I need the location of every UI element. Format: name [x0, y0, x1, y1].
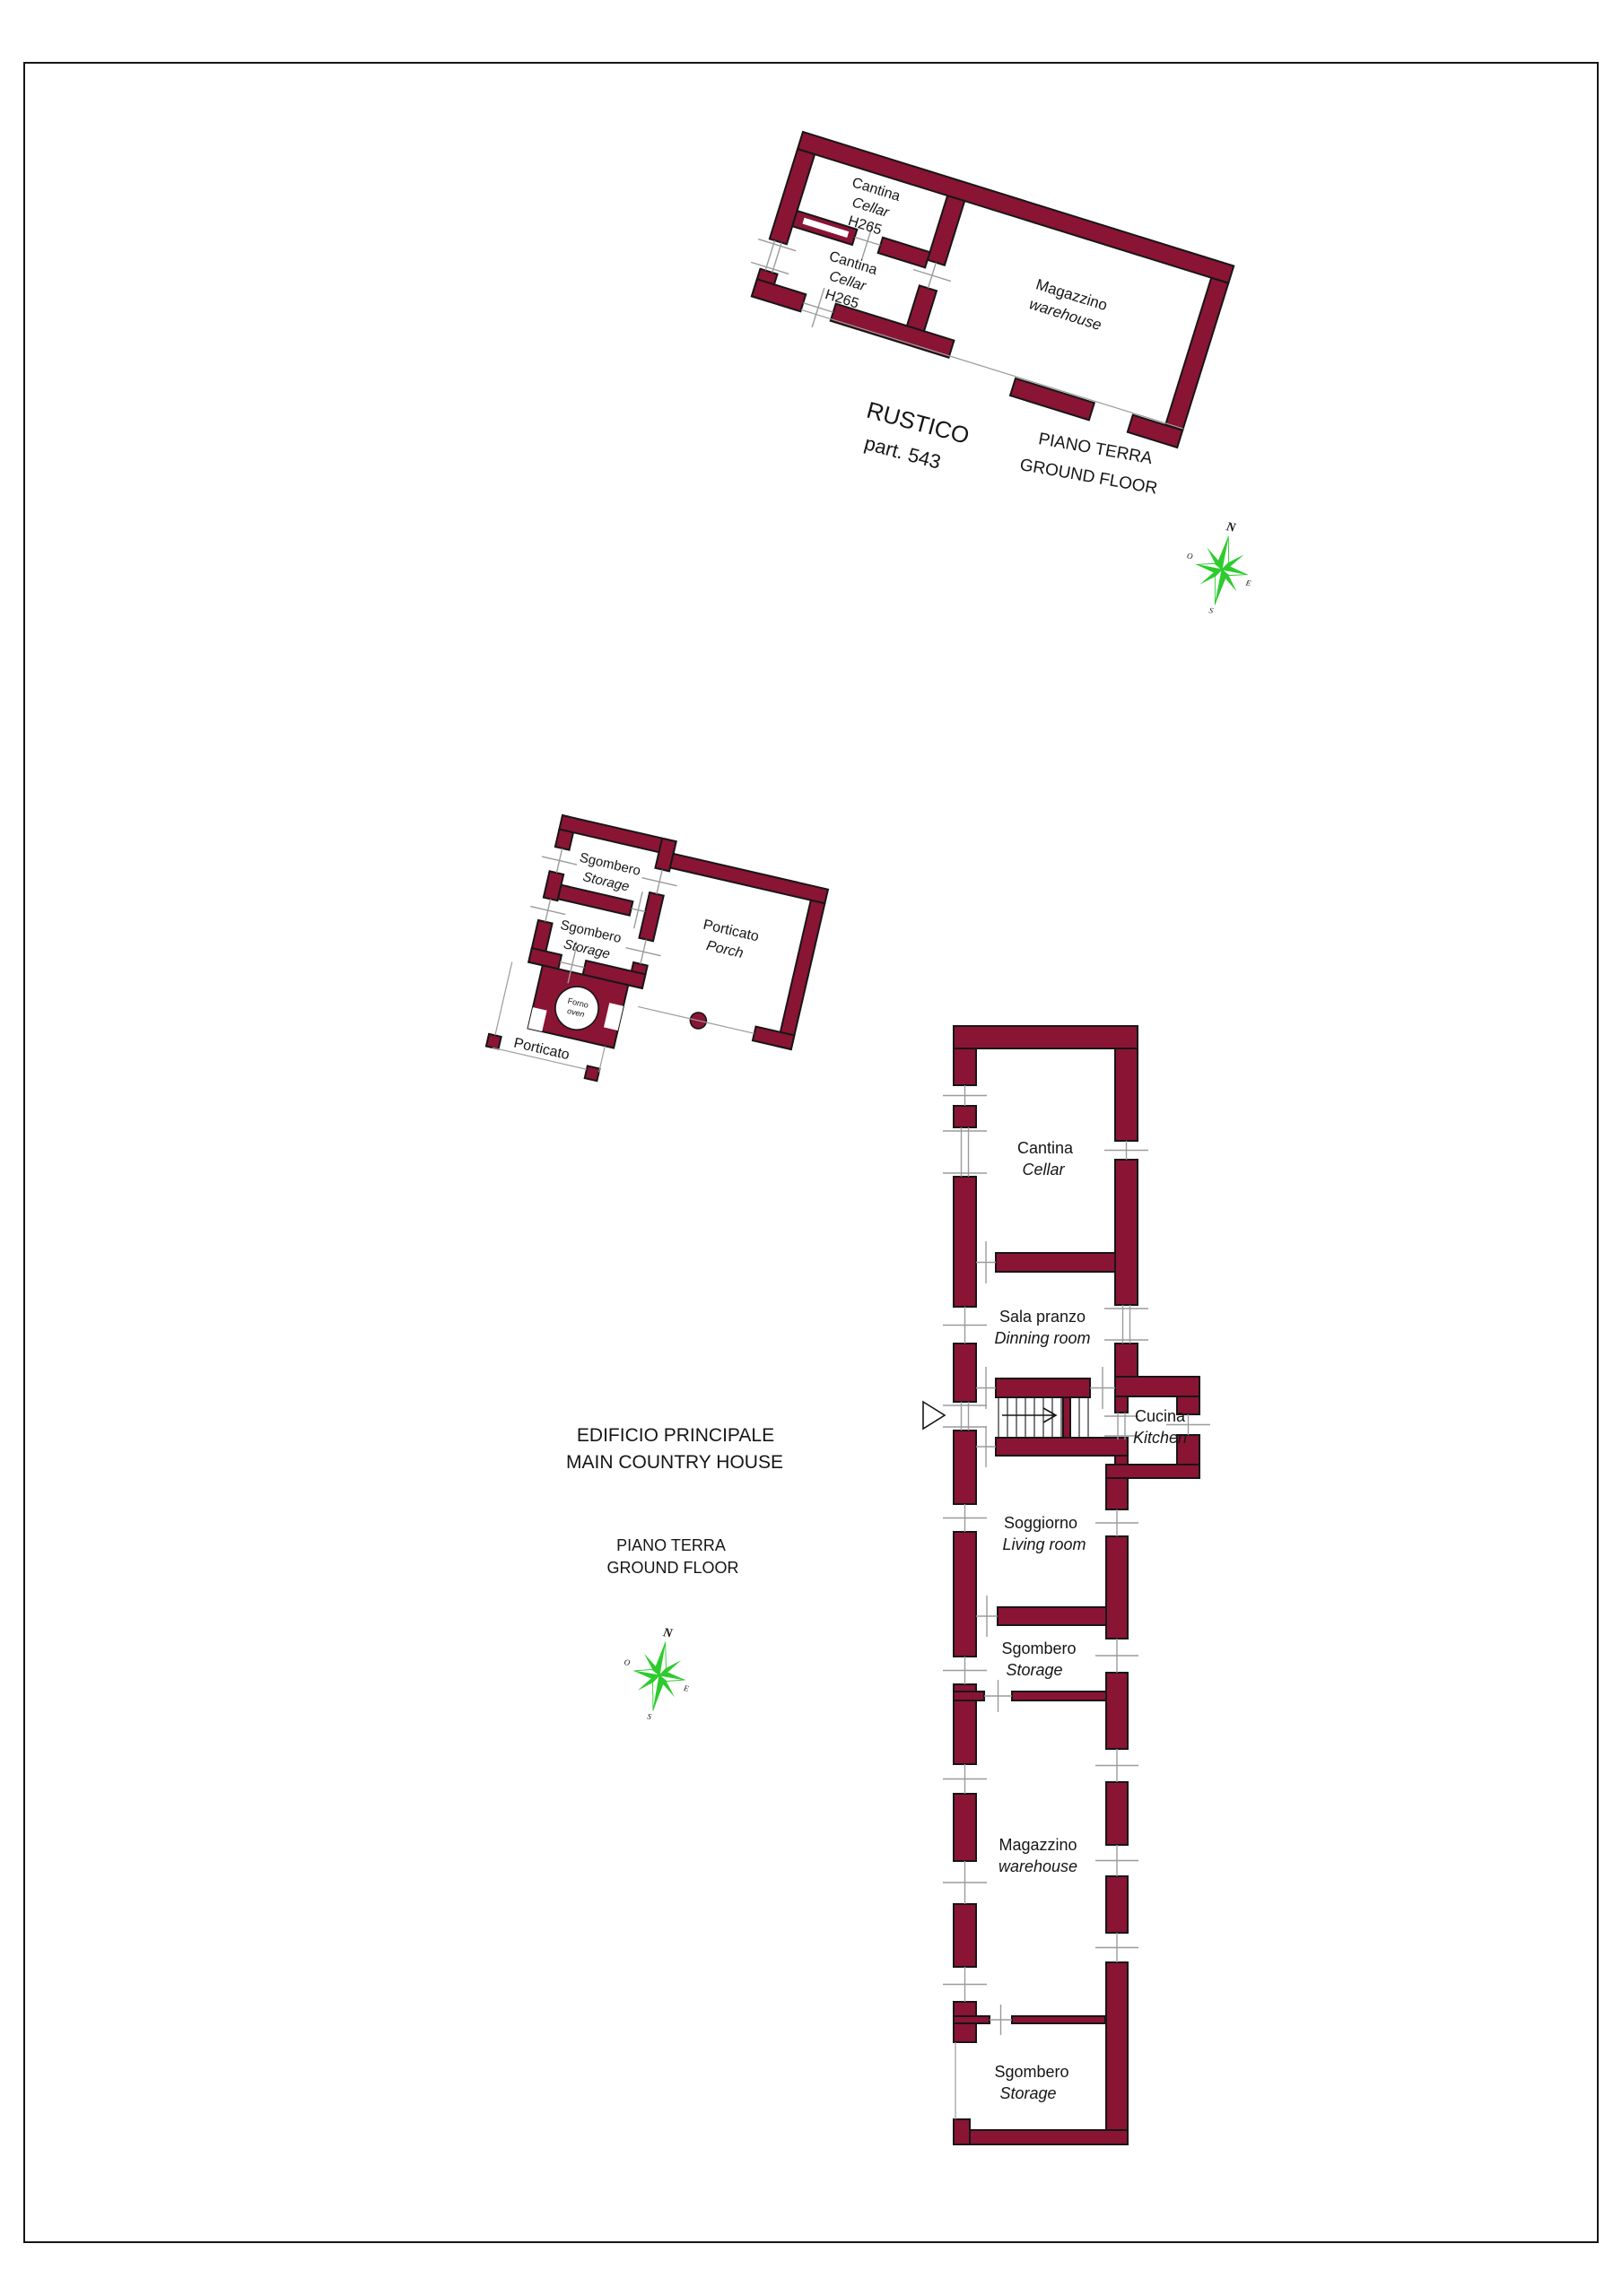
wall-segment	[954, 1692, 984, 1700]
rustico-caption: RUSTICO part. 543	[856, 396, 972, 479]
compass-north-upper	[1177, 514, 1263, 622]
wall-segment	[1115, 1160, 1138, 1305]
wall-segment	[1106, 1465, 1199, 1478]
wall-segment	[998, 1607, 1106, 1625]
wall-segment	[996, 1378, 1090, 1397]
threshold-line	[772, 243, 781, 273]
wall-segment	[1106, 1673, 1128, 1749]
wall-segment	[486, 1034, 501, 1049]
room-label: Cantina	[1017, 1139, 1074, 1157]
wall-segment	[1165, 278, 1228, 430]
room-label-en: Porch	[705, 938, 746, 961]
main-floor-en: GROUND FLOOR	[606, 1559, 738, 1577]
threshold-line	[801, 309, 1183, 429]
wall-segment	[954, 1048, 976, 1085]
threshold-line	[530, 907, 565, 915]
threshold-line	[626, 948, 661, 956]
room-label-en: Cellar	[1022, 1161, 1065, 1178]
room-label-en: Kitchen	[1133, 1429, 1187, 1447]
wall-segment	[954, 1794, 976, 1861]
building-rustico: Cantina Cellar H265 Cantina Cellar H265 …	[736, 128, 1234, 448]
threshold-line	[642, 878, 677, 886]
plan-sheet: N E S O Cantina Cellar H265 Cantina Cell…	[0, 0, 1622, 2296]
wall-segment	[996, 1253, 1115, 1272]
wall-segment	[970, 2130, 1128, 2144]
compass-north-lower	[615, 1621, 699, 1727]
wall-segment	[878, 238, 930, 268]
wall-segment	[752, 279, 806, 311]
room-label: Sala pranzo	[999, 1308, 1086, 1326]
main-title-it: EDIFICIO PRINCIPALE	[577, 1425, 774, 1446]
wall-segment	[954, 1026, 1138, 1048]
wall-segment	[954, 1344, 976, 1402]
room-label-en: Storage	[1006, 1661, 1062, 1679]
wall-segment	[1010, 378, 1094, 420]
wall-segment	[928, 196, 964, 265]
wall-segment	[954, 2016, 990, 2023]
wall-segment	[1106, 1876, 1128, 1933]
wall-segment	[1115, 1377, 1199, 1396]
threshold-line	[542, 857, 577, 865]
floor-plan-canvas: N E S O Cantina Cellar H265 Cantina Cell…	[0, 0, 1622, 2296]
wall-segment	[954, 1532, 976, 1657]
wall-segment	[777, 900, 824, 1049]
wall-segment	[831, 304, 955, 358]
wall-segment	[954, 2119, 970, 2144]
wall-segment	[1106, 1536, 1128, 1639]
threshold-line	[495, 962, 512, 1036]
room-label: Soggiorno	[1004, 1514, 1077, 1532]
threshold-line	[638, 1006, 754, 1033]
rustico-floor-caption: PIANO TERRA GROUND FLOOR	[1018, 427, 1164, 498]
building-outbuilding: Sgombero Storage Sgombero Storage Portic…	[484, 810, 831, 1122]
entrance-arrow	[923, 1402, 945, 1429]
wall-segment	[1115, 1396, 1128, 1413]
wall-segment	[585, 1065, 600, 1081]
threshold-line	[599, 1046, 606, 1072]
room-label-en: Storage	[999, 2084, 1056, 2102]
room-label: Cucina	[1135, 1407, 1186, 1425]
wall-segment	[1106, 1478, 1128, 1509]
wall-segment	[954, 1431, 976, 1504]
wall-segment	[555, 830, 573, 850]
wall-segment	[954, 1177, 976, 1307]
threshold-line	[812, 288, 824, 327]
threshold-line	[765, 240, 774, 270]
room-label-en: warehouse	[998, 1857, 1077, 1875]
room-label: Sgombero	[1001, 1639, 1076, 1657]
threshold-line	[634, 891, 642, 928]
wall-segment	[954, 1904, 976, 1967]
wall-segment	[559, 815, 676, 856]
wall-segment	[1063, 1397, 1070, 1438]
wall-segment	[639, 892, 663, 941]
room-label: Magazzino	[998, 1836, 1077, 1854]
threshold-line	[913, 269, 951, 281]
wall-segment	[1115, 1048, 1138, 1141]
room-label-en: Living room	[1002, 1535, 1086, 1553]
room-label-en: Dinning room	[994, 1329, 1090, 1347]
wall-segment	[1012, 2016, 1105, 2023]
wall-segment	[1106, 1962, 1128, 2144]
main-floor-it: PIANO TERRA	[616, 1536, 726, 1554]
building-main-house: Cantina Cellar Sala pranzo Dinning room …	[923, 1026, 1210, 2144]
wall-segment	[1106, 1782, 1128, 1845]
wall-segment	[907, 285, 937, 331]
page-border	[24, 63, 1598, 2242]
wall-segment	[670, 854, 828, 903]
wall-segment	[1012, 1692, 1106, 1700]
room-label: Sgombero	[994, 2063, 1068, 2081]
main-title-en: MAIN COUNTRY HOUSE	[566, 1452, 783, 1473]
wall-segment	[1115, 1344, 1138, 1377]
wall-segment	[996, 1438, 1128, 1456]
wall-segment	[954, 1106, 976, 1127]
